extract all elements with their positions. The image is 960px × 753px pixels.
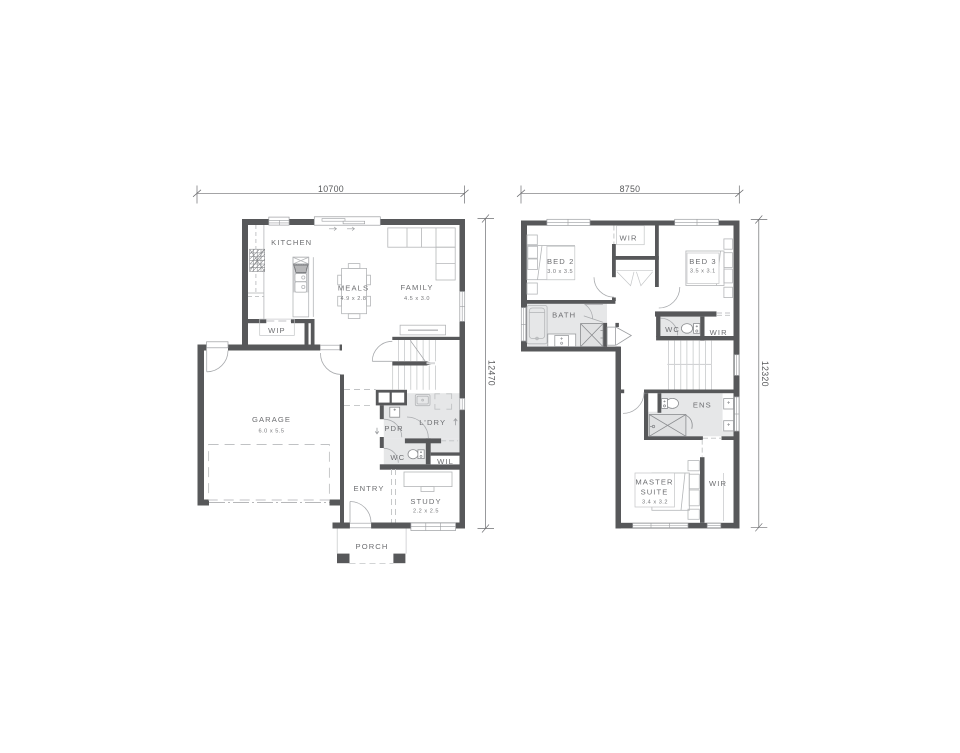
svg-text:3.5 x 3.1: 3.5 x 3.1 [690, 269, 716, 275]
svg-text:STUDY: STUDY [410, 497, 441, 506]
svg-text:GARAGE: GARAGE [252, 415, 291, 424]
svg-text:WC: WC [390, 453, 405, 462]
svg-text:MASTER: MASTER [635, 478, 673, 487]
svg-text:6.0 x 5.5: 6.0 x 5.5 [259, 429, 285, 435]
svg-text:8750: 8750 [620, 184, 641, 194]
svg-text:WIR: WIR [619, 234, 637, 243]
svg-text:WIL: WIL [437, 457, 454, 466]
svg-text:BED 3: BED 3 [689, 257, 716, 266]
svg-text:WIR: WIR [710, 328, 728, 337]
svg-text:10700: 10700 [318, 184, 344, 194]
svg-text:4.5 x 3.0: 4.5 x 3.0 [404, 296, 430, 302]
svg-text:WC: WC [665, 325, 680, 334]
svg-text:BED 2: BED 2 [547, 257, 574, 266]
svg-text:3.0 x 3.5: 3.0 x 3.5 [547, 269, 573, 275]
svg-text:FAMILY: FAMILY [400, 283, 433, 292]
svg-text:4.9 x 2.8: 4.9 x 2.8 [341, 296, 367, 302]
svg-text:PORCH: PORCH [356, 542, 389, 551]
svg-text:WIR: WIR [709, 479, 727, 488]
svg-text:3.4 x 3.2: 3.4 x 3.2 [642, 499, 668, 505]
svg-text:L’DRY: L’DRY [419, 418, 446, 427]
svg-text:12470: 12470 [486, 360, 496, 386]
svg-text:PDR: PDR [384, 424, 403, 433]
svg-text:WIP: WIP [268, 326, 286, 335]
svg-text:KITCHEN: KITCHEN [271, 238, 312, 247]
svg-text:SUITE: SUITE [641, 488, 669, 497]
svg-text:ENS: ENS [693, 401, 712, 410]
svg-text:ENTRY: ENTRY [353, 484, 384, 493]
svg-text:2.2 x 2.5: 2.2 x 2.5 [413, 509, 439, 515]
svg-text:BATH: BATH [552, 311, 576, 320]
svg-text:MEALS: MEALS [338, 284, 369, 293]
svg-text:12320: 12320 [760, 361, 770, 387]
